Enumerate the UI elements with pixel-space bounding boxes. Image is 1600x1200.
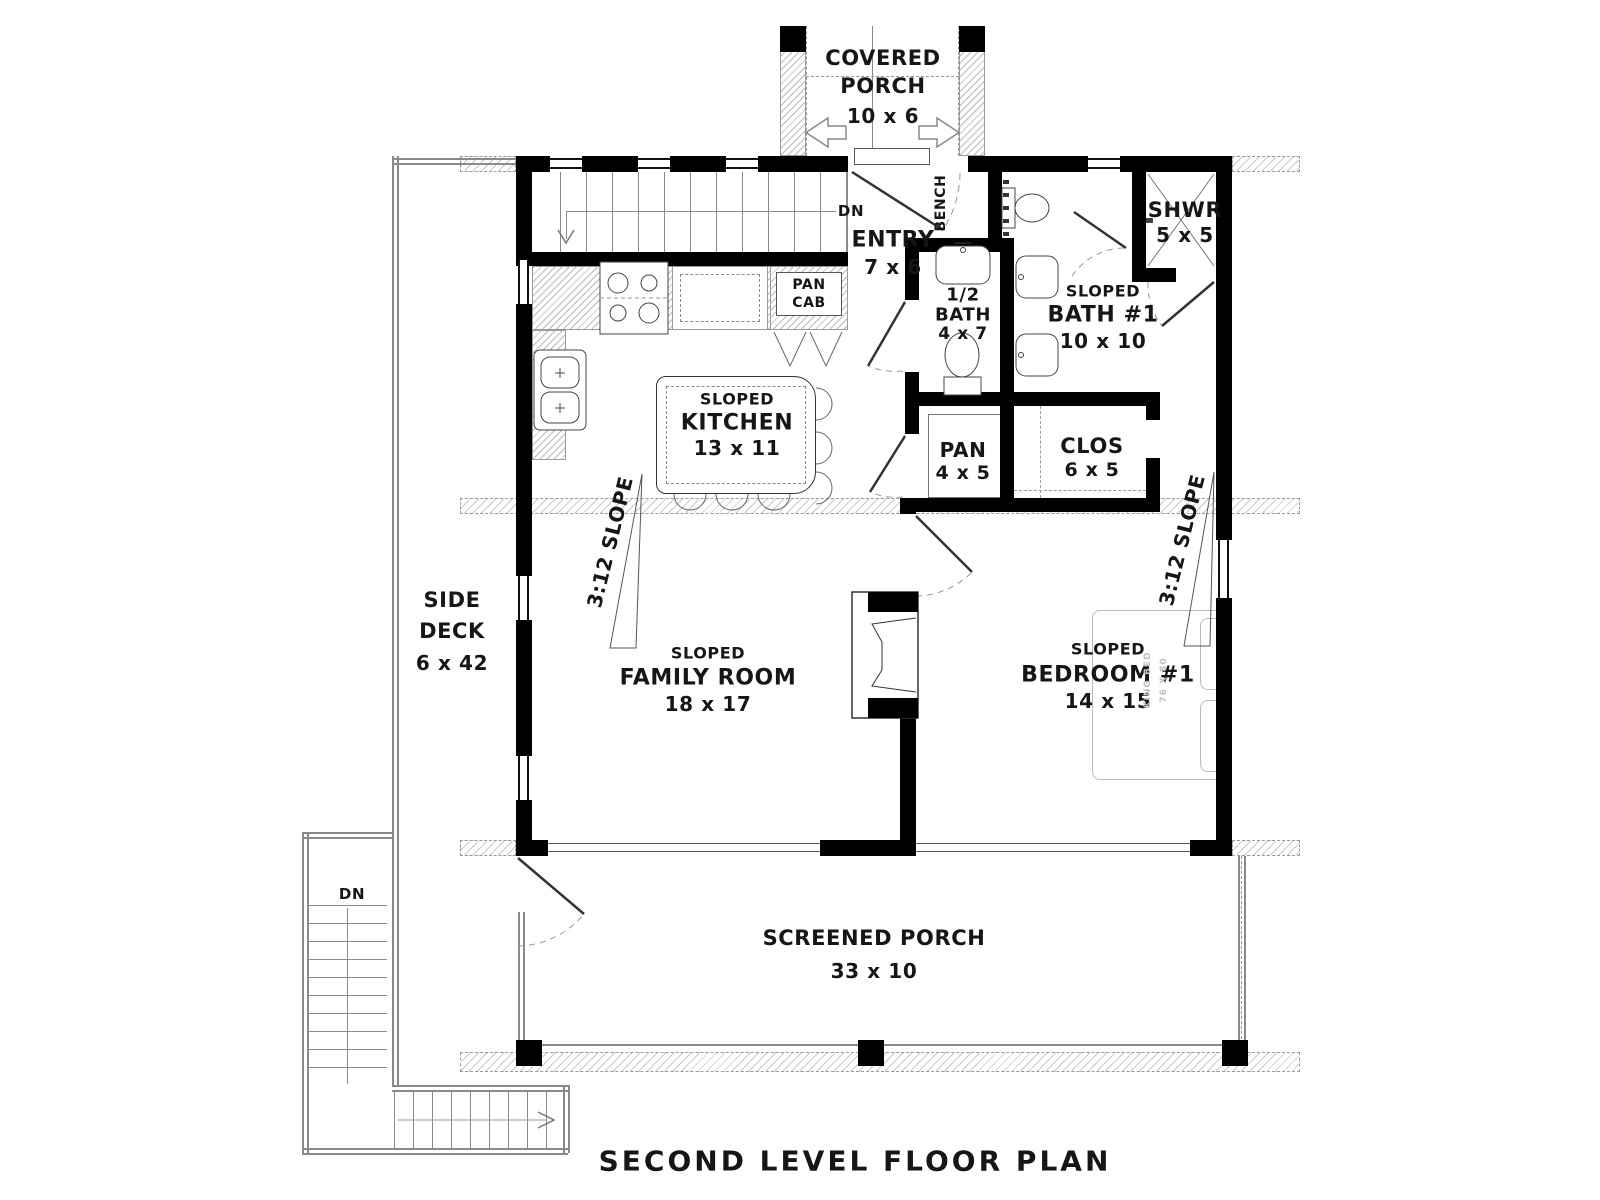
pantry-door-swing-icon — [870, 436, 905, 497]
dn-label-upper: DN — [838, 202, 864, 220]
shower-size: 5 x 5 — [1156, 223, 1214, 247]
pan-cab-label: PAN — [792, 277, 825, 293]
kitchen-size: 13 x 11 — [694, 436, 781, 460]
bench-label: BENCH — [933, 175, 949, 232]
bedroom1-modifier: SLOPED — [1071, 640, 1145, 659]
entry-label: ENTRY — [851, 228, 934, 253]
exterior-stair-arrow-icon — [398, 1112, 554, 1128]
pantry-label: PAN — [940, 438, 987, 462]
annotation-layer — [0, 0, 1600, 1200]
side-deck-label: SIDE — [423, 588, 480, 612]
bath1-toilet-icon — [1002, 188, 1049, 228]
cabinet-door-icon — [774, 332, 842, 366]
bedroom-door-swing-icon — [916, 516, 972, 596]
screened-porch-label: SCREENED PORCH — [763, 926, 986, 950]
kitchen-label: KITCHEN — [681, 411, 793, 436]
screened-porch-size: 33 x 10 — [831, 959, 918, 983]
family-room-label: FAMILY ROOM — [620, 666, 797, 691]
covered-porch-size: 10 x 6 — [847, 104, 919, 128]
half-bath-door-swing-icon — [868, 302, 905, 371]
closet-size: 6 x 5 — [1065, 459, 1120, 481]
bath1-size: 10 x 10 — [1060, 329, 1147, 353]
half-bath-label: BATH — [935, 305, 991, 326]
bed-faint-label: KING BED — [1143, 652, 1153, 709]
floor-plan: COVERED PORCH 10 x 6 DN BENCH ENTRY 7 x … — [0, 0, 1600, 1200]
bed-faint-label: 76 X 80 — [1159, 657, 1169, 702]
side-deck-size: 6 x 42 — [416, 651, 488, 675]
bedroom1-size: 14 x 15 — [1065, 689, 1152, 713]
screen-door-swing-icon — [518, 858, 584, 946]
half-bath-label: 1/2 — [946, 285, 979, 306]
kitchen-modifier: SLOPED — [700, 390, 774, 409]
covered-porch-label: PORCH — [840, 74, 925, 98]
fireplace-icon — [852, 592, 918, 718]
bath1-modifier: SLOPED — [1066, 282, 1140, 301]
bath1-label: BATH #1 — [1047, 303, 1158, 328]
bath1-sink-icon — [1016, 334, 1058, 376]
pan-cab-label: CAB — [792, 295, 826, 311]
closet-label: CLOS — [1060, 434, 1123, 458]
stair-down-arrow-icon — [558, 230, 574, 243]
shower-label: SHWR — [1148, 198, 1222, 222]
page-title: SECOND LEVEL FLOOR PLAN — [599, 1145, 1112, 1178]
pantry-size: 4 x 5 — [936, 462, 991, 484]
porch-arrow-left-icon — [806, 118, 846, 147]
porch-arrow-right-icon — [919, 118, 959, 147]
stove-icon — [600, 262, 668, 334]
covered-porch-label: COVERED — [825, 46, 940, 70]
family-room-size: 18 x 17 — [665, 692, 752, 716]
family-room-modifier: SLOPED — [671, 644, 745, 663]
side-deck-label: DECK — [419, 619, 485, 643]
bath1-sink-icon — [1016, 256, 1058, 298]
entry-size: 7 x 6 — [864, 255, 922, 279]
bath1-door-swing-icon — [1072, 212, 1126, 276]
half-bath-sink-icon — [936, 243, 990, 284]
dn-label-lower: DN — [339, 885, 365, 903]
half-bath-size: 4 x 7 — [938, 324, 987, 344]
kitchen-sink-icon — [534, 350, 586, 430]
